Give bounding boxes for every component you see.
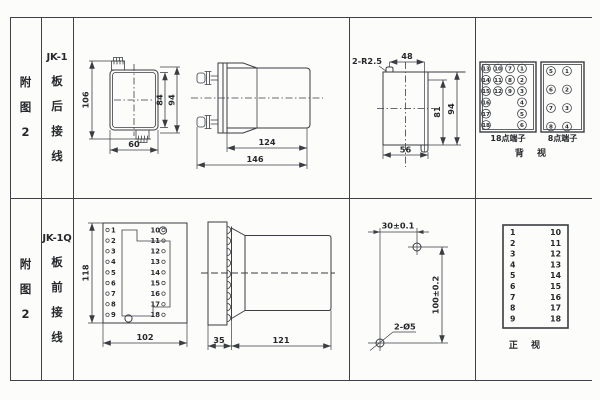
terminal-7-number: 7 xyxy=(508,67,512,73)
wiring-char: 后 xyxy=(51,94,63,119)
wiring-char: 线 xyxy=(51,144,63,169)
terminal-2-number: 2 xyxy=(111,237,116,245)
terminal-bump xyxy=(227,303,231,310)
model-wiring-row2: JK-1Q 板 前 接 线 xyxy=(41,198,73,380)
terminal8-label: 8点端子 xyxy=(548,133,578,143)
jk1q-front-plate-and-side-view: 123456789101112131415161718 118 102 35 xyxy=(73,199,349,380)
terminal-1-number: 1 xyxy=(510,228,515,237)
terminal-6-number: 6 xyxy=(549,88,553,94)
terminal-7-number: 7 xyxy=(549,106,553,112)
terminal-12-number: 12 xyxy=(550,250,561,259)
terminal-bump xyxy=(227,292,231,299)
wiring-char: 板 xyxy=(51,69,63,94)
terminal-13-number: 13 xyxy=(482,67,490,73)
terminal-18-number: 18 xyxy=(550,314,561,323)
terminal-17-number: 17 xyxy=(482,112,490,118)
figure-char: 图 xyxy=(20,277,32,302)
terminal-14-number: 14 xyxy=(482,78,490,84)
dim-plate-height: 118 xyxy=(81,264,91,281)
terminal-17-number: 17 xyxy=(151,301,161,309)
terminal-1-hole xyxy=(106,228,109,231)
figure-char: 图 xyxy=(20,95,32,120)
terminal-13-number: 13 xyxy=(151,258,161,266)
terminal-16-number: 16 xyxy=(482,101,490,107)
terminal-5-number: 5 xyxy=(549,69,553,75)
terminal-2-hole xyxy=(106,239,109,242)
terminal-bump xyxy=(227,314,231,321)
terminal-4-number: 4 xyxy=(510,260,516,269)
terminal-4-number: 4 xyxy=(565,125,569,131)
terminal-13-hole xyxy=(162,260,165,263)
terminal-4-number: 4 xyxy=(111,258,116,266)
terminal-bump xyxy=(227,259,231,266)
terminal-13-number: 13 xyxy=(550,260,561,269)
dim-body-length: 121 xyxy=(272,335,289,345)
terminal-6-number: 6 xyxy=(111,279,116,287)
jk1q-drilling-pattern: 30±0.1 100±0.2 2-Ø5 xyxy=(349,199,475,380)
terminal-5-number: 5 xyxy=(510,271,515,280)
model-label: JK-1Q xyxy=(42,228,71,250)
terminal-8-number: 8 xyxy=(111,301,116,309)
terminal-12-number: 12 xyxy=(151,248,161,256)
wiring-char: 接 xyxy=(51,300,63,325)
terminal-block-bottom xyxy=(136,130,149,139)
terminal-7-hole xyxy=(106,292,109,295)
dim-plate-width: 102 xyxy=(136,332,153,342)
jk1-side-view: 124 146 xyxy=(191,63,323,169)
relay-dimension-drawing-sheet: 附 图 2 JK-1 板 后 接 线 附 图 2 JK-1Q 板 前 接 线 xyxy=(0,0,600,400)
terminal-6-hole xyxy=(106,281,109,284)
dim-plate-depth: 35 xyxy=(213,335,225,345)
dim-side-body-length: 124 xyxy=(258,137,275,147)
terminal-bump xyxy=(227,237,231,244)
terminal-2-number: 2 xyxy=(565,88,569,94)
terminal-9-number: 9 xyxy=(510,314,515,323)
terminal-3-number: 3 xyxy=(510,250,515,259)
terminal-5-hole xyxy=(106,271,109,274)
jk1-rear-and-side-view-drawing: 106 60 84 94 xyxy=(73,17,349,199)
terminal-16-number: 16 xyxy=(151,290,161,298)
dim-cutout-outer-height: 94 xyxy=(446,103,456,115)
terminal-8-hole xyxy=(106,303,109,306)
dim-rear-inner-height: 84 xyxy=(155,94,165,106)
slot-tab-top xyxy=(386,67,393,72)
terminal-block-18pt: 131415161718101112789123456 18点端子 xyxy=(480,62,536,143)
figure-char: 附 xyxy=(20,252,32,277)
terminal-2-number: 2 xyxy=(520,78,524,84)
terminal-15-number: 15 xyxy=(482,89,490,95)
dim-cutout-slot-offset: 48 xyxy=(401,51,413,61)
terminal-9-number: 9 xyxy=(111,311,116,319)
mounting-stud xyxy=(197,72,218,85)
terminal-3-hole xyxy=(106,250,109,253)
terminal-bump xyxy=(227,226,231,233)
terminal-7-number: 7 xyxy=(510,293,515,302)
terminal-8-number: 8 xyxy=(508,78,512,84)
dim-hole-spacing-h: 30±0.1 xyxy=(382,221,415,231)
terminal-6-number: 6 xyxy=(510,282,515,291)
terminal-2-number: 2 xyxy=(510,239,515,248)
terminal-bump xyxy=(227,270,231,277)
terminal-14-number: 14 xyxy=(151,269,161,277)
terminal-8-number: 8 xyxy=(510,304,515,313)
rear-view-label: 背 视 xyxy=(515,147,551,159)
terminal-4-number: 4 xyxy=(520,101,524,107)
terminal-14-hole xyxy=(162,271,165,274)
terminal-10-number: 10 xyxy=(494,67,502,73)
terminal-9-number: 9 xyxy=(508,89,512,95)
terminal-4-hole xyxy=(106,260,109,263)
terminal-10-hole xyxy=(162,228,165,231)
dim-cutout-inner-height: 81 xyxy=(432,106,442,118)
terminal-5-number: 5 xyxy=(520,112,524,118)
terminal-bump xyxy=(227,281,231,288)
terminal-1-number: 1 xyxy=(565,69,569,75)
terminal-12-number: 12 xyxy=(494,89,502,95)
terminal-7-number: 7 xyxy=(111,290,116,298)
wiring-char: 线 xyxy=(51,325,63,350)
dim-cutout-width: 56 xyxy=(400,145,412,155)
dim-rear-outer-height: 94 xyxy=(167,94,177,106)
front-view-label: 正 视 xyxy=(509,339,545,351)
terminal-15-number: 15 xyxy=(550,282,561,291)
terminal-block-8pt: 56781234 8点端子 xyxy=(541,62,584,143)
terminal18-label: 18点端子 xyxy=(490,133,525,143)
terminal-9-hole xyxy=(106,313,109,316)
figure-label-row2: 附 图 2 xyxy=(10,198,41,380)
terminal-3-number: 3 xyxy=(520,89,524,95)
jk1-rear-view: 106 60 84 94 xyxy=(81,58,181,155)
terminal-11-number: 11 xyxy=(550,239,561,248)
dim-side-total-length: 146 xyxy=(246,154,263,164)
terminal-15-number: 15 xyxy=(151,279,161,287)
terminal-5-number: 5 xyxy=(111,269,116,277)
wiring-char: 前 xyxy=(51,275,63,300)
mounting-stud xyxy=(197,116,218,129)
terminal-rear-views: 131415161718101112789123456 18点端子 567812… xyxy=(475,17,592,199)
terminal-10-number: 10 xyxy=(550,228,561,237)
terminal-11-number: 11 xyxy=(494,78,502,84)
terminal-3-number: 3 xyxy=(111,248,116,256)
terminal-10-number: 10 xyxy=(151,226,161,234)
model-label: JK-1 xyxy=(47,47,68,69)
terminal-11-number: 11 xyxy=(151,237,161,245)
terminal-18-number: 18 xyxy=(482,123,490,129)
hole-diameter-label: 2-Ø5 xyxy=(394,322,416,332)
model-wiring-row1: JK-1 板 后 接 线 xyxy=(41,17,73,198)
figure-char: 2 xyxy=(21,302,29,327)
terminal-bump xyxy=(227,248,231,255)
terminal-12-hole xyxy=(162,250,165,253)
terminal-16-hole xyxy=(162,292,165,295)
terminal-18-hole xyxy=(162,313,165,316)
wiring-char: 板 xyxy=(51,250,63,275)
figure-label-row1: 附 图 2 xyxy=(10,17,41,198)
figure-char: 2 xyxy=(21,120,29,145)
terminal-15-hole xyxy=(162,281,165,284)
grid-line-bottom xyxy=(10,380,592,381)
jk1-panel-cutout-drawing: 2-R2.5 48 81 94 56 xyxy=(349,17,475,199)
terminal-3-number: 3 xyxy=(565,106,569,112)
jk1q-side-view: 35 121 xyxy=(201,222,335,350)
terminal-8-number: 8 xyxy=(549,125,553,131)
figure-char: 附 xyxy=(20,70,32,95)
terminal-16-number: 16 xyxy=(550,293,561,302)
terminal-6-number: 6 xyxy=(520,123,524,129)
terminal-17-hole xyxy=(162,303,165,306)
dim-rear-width: 60 xyxy=(128,139,140,149)
terminal-14-number: 14 xyxy=(550,271,561,280)
dim-rear-height: 106 xyxy=(81,91,91,108)
wiring-char: 接 xyxy=(51,119,63,144)
terminal-front-view: 123456789101112131415161718 正 视 xyxy=(475,199,592,380)
cutout-corner-radius-label: 2-R2.5 xyxy=(352,56,382,66)
dim-hole-spacing-v: 100±0.2 xyxy=(431,276,441,314)
terminal-block-top xyxy=(112,61,125,70)
terminal-1-number: 1 xyxy=(520,67,524,73)
terminal-18-number: 18 xyxy=(151,311,161,319)
terminal-17-number: 17 xyxy=(550,304,561,313)
terminal-1-number: 1 xyxy=(111,226,116,234)
jk1q-front-plate-view: 123456789101112131415161718 118 102 xyxy=(81,223,188,347)
